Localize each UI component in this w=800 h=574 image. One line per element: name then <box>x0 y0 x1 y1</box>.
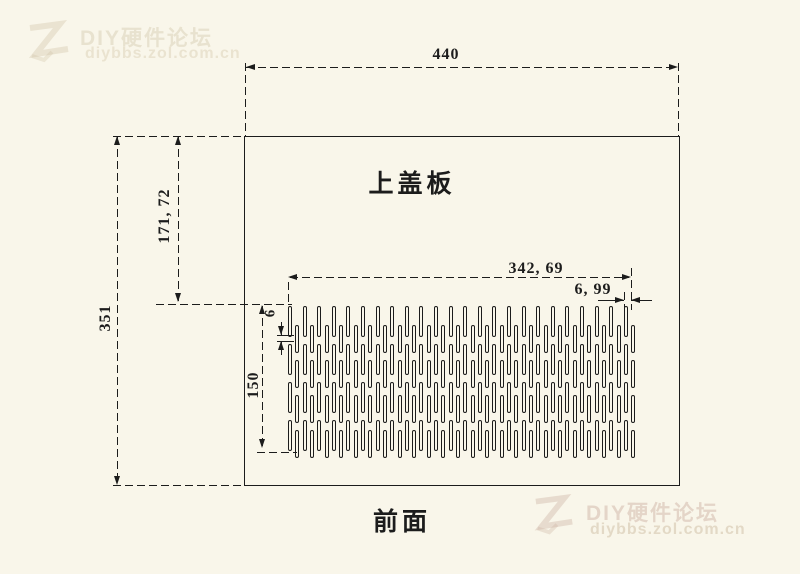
vent-slot <box>544 395 548 423</box>
vent-slot <box>529 325 533 353</box>
cad-drawing-canvas: DIY硬件论坛 diybbs.zol.com.cn DIY硬件论坛 diybbs… <box>0 0 800 574</box>
view-label: 前面 <box>373 502 431 538</box>
vent-slot <box>631 325 635 353</box>
vent-slot <box>463 306 467 337</box>
vent-slot <box>434 420 438 451</box>
vent-slot <box>361 382 365 413</box>
vent-slot <box>478 306 482 337</box>
dim-text-overall-width: 440 <box>433 46 460 64</box>
dim-arrow <box>259 439 265 448</box>
vent-slot <box>456 360 460 388</box>
vent-slot <box>419 382 423 413</box>
vent-slot <box>463 420 467 451</box>
vent-slot <box>368 325 372 353</box>
vent-slot <box>558 430 562 458</box>
vent-slot <box>339 360 343 388</box>
vent-slot <box>303 420 307 451</box>
dim-arrow <box>175 293 181 302</box>
vent-slot <box>624 420 628 451</box>
vent-slot <box>383 430 387 458</box>
dim-line-342 <box>290 277 629 278</box>
vent-slot <box>565 420 569 451</box>
vent-slot <box>390 306 394 337</box>
vent-slot <box>536 420 540 451</box>
dim-line-351 <box>117 137 118 485</box>
vent-slot <box>624 382 628 413</box>
vent-slot <box>310 395 314 423</box>
vent-slot <box>449 382 453 413</box>
vent-slot <box>609 382 613 413</box>
vent-slot <box>346 344 350 375</box>
vent-slot <box>602 395 606 423</box>
vent-slot <box>449 420 453 451</box>
vent-slot <box>354 430 358 458</box>
watermark-logo-icon <box>528 492 582 538</box>
vent-slot <box>463 382 467 413</box>
vent-slot <box>427 430 431 458</box>
vent-slot <box>288 420 292 451</box>
vent-slot <box>288 306 292 337</box>
vent-slot <box>507 344 511 375</box>
vent-slot <box>412 395 416 423</box>
panel-edge-right <box>679 136 680 486</box>
dim-ext-351-bottom <box>113 485 244 486</box>
vent-slot <box>609 420 613 451</box>
vent-slot <box>441 430 445 458</box>
vent-slot <box>398 360 402 388</box>
vent-slot <box>419 344 423 375</box>
vent-slot <box>361 344 365 375</box>
vent-slot <box>376 306 380 337</box>
vent-slot <box>427 395 431 423</box>
vent-slot <box>288 382 292 413</box>
vent-slot <box>514 360 518 388</box>
vent-slot <box>368 395 372 423</box>
vent-slot <box>412 360 416 388</box>
vent-slot <box>617 325 621 353</box>
vent-slot <box>485 325 489 353</box>
vent-slot <box>383 395 387 423</box>
vent-slot <box>303 344 307 375</box>
vent-slot <box>485 395 489 423</box>
vent-slot <box>514 325 518 353</box>
vent-slot <box>325 430 329 458</box>
dim-arrow <box>175 136 181 145</box>
vent-slot <box>551 306 555 337</box>
vent-slot <box>361 306 365 337</box>
dim-line-440 <box>246 67 678 68</box>
vent-slot <box>514 430 518 458</box>
vent-slot <box>617 360 621 388</box>
vent-slot <box>434 344 438 375</box>
vent-slot <box>595 306 599 337</box>
vent-slot <box>405 344 409 375</box>
vent-slot <box>624 306 628 337</box>
dim-ext-440-left <box>245 63 246 136</box>
vent-slot <box>492 306 496 337</box>
vent-slot <box>354 360 358 388</box>
vent-slot <box>310 325 314 353</box>
vent-slot <box>332 306 336 337</box>
vent-slot <box>398 325 402 353</box>
vent-slot <box>551 344 555 375</box>
vent-slot <box>631 430 635 458</box>
vent-slot <box>434 382 438 413</box>
vent-slot <box>332 344 336 375</box>
vent-slot <box>544 430 548 458</box>
vent-slot <box>587 395 591 423</box>
vent-slot <box>544 325 548 353</box>
vent-slot <box>390 382 394 413</box>
vent-slot <box>339 395 343 423</box>
vent-slot <box>478 382 482 413</box>
vent-slot <box>558 325 562 353</box>
dim-arrow <box>631 297 640 303</box>
vent-slot <box>507 382 511 413</box>
vent-slot <box>419 306 423 337</box>
vent-slot <box>368 360 372 388</box>
watermark-logo-icon <box>22 18 78 66</box>
vent-slot <box>602 360 606 388</box>
dim-arrow <box>615 297 624 303</box>
vent-slot <box>471 395 475 423</box>
dim-text-top-offset: 171, 72 <box>156 189 174 244</box>
vent-slot <box>463 344 467 375</box>
vent-slot <box>558 360 562 388</box>
vent-slot <box>544 360 548 388</box>
vent-slot <box>339 430 343 458</box>
vent-slot <box>573 395 577 423</box>
vent-slot <box>573 360 577 388</box>
vent-slot <box>427 360 431 388</box>
dim-ext-171-bottom <box>156 304 292 305</box>
vent-slot <box>332 382 336 413</box>
vent-slot <box>587 325 591 353</box>
vent-slot <box>587 360 591 388</box>
vent-slot <box>441 325 445 353</box>
watermark-url: diybbs.zol.com.cn <box>590 521 746 539</box>
vent-slot <box>492 382 496 413</box>
vent-slot <box>295 360 299 388</box>
vent-slot <box>551 420 555 451</box>
dim-line-171 <box>178 137 179 302</box>
vent-slot <box>580 382 584 413</box>
vent-slot <box>456 325 460 353</box>
dim-text-slot-pitch: 6, 99 <box>575 281 612 299</box>
vent-slot <box>361 420 365 451</box>
vent-slot <box>441 360 445 388</box>
vent-slot <box>383 325 387 353</box>
vent-slot <box>551 382 555 413</box>
vent-slot <box>471 430 475 458</box>
dim-arrow <box>622 274 631 280</box>
vent-slot <box>617 430 621 458</box>
vent-slot <box>317 306 321 337</box>
vent-slot <box>558 395 562 423</box>
vent-slot <box>485 430 489 458</box>
vent-slot <box>514 395 518 423</box>
vent-slot <box>529 395 533 423</box>
vent-slot <box>412 325 416 353</box>
dim-arrow <box>246 64 255 70</box>
vent-slot <box>346 420 350 451</box>
vent-slot <box>522 420 526 451</box>
vent-slot <box>405 420 409 451</box>
vent-slot <box>536 382 540 413</box>
vent-slot <box>405 382 409 413</box>
vent-slot <box>419 420 423 451</box>
vent-slot <box>412 430 416 458</box>
vent-slot <box>346 382 350 413</box>
vent-slot <box>595 344 599 375</box>
vent-slot <box>573 325 577 353</box>
vent-slot <box>565 382 569 413</box>
vent-slot <box>631 395 635 423</box>
vent-slot <box>390 420 394 451</box>
vent-slot <box>609 344 613 375</box>
vent-slot <box>471 360 475 388</box>
vent-slot <box>529 430 533 458</box>
vent-slot <box>398 430 402 458</box>
vent-slot <box>325 360 329 388</box>
dim-text-slot-area-height: 150 <box>245 372 263 399</box>
vent-slot <box>500 395 504 423</box>
vent-slot <box>390 344 394 375</box>
vent-slot <box>310 430 314 458</box>
vent-slot <box>441 395 445 423</box>
vent-slot <box>398 395 402 423</box>
vent-slot <box>617 395 621 423</box>
vent-slot <box>609 306 613 337</box>
dim-text-overall-height: 351 <box>97 305 115 332</box>
vent-slot <box>507 420 511 451</box>
vent-slot <box>522 382 526 413</box>
vent-slot <box>536 306 540 337</box>
vent-slot <box>624 344 628 375</box>
vent-slot <box>580 344 584 375</box>
vent-slot <box>485 360 489 388</box>
vent-slot <box>492 344 496 375</box>
vent-slot <box>317 420 321 451</box>
vent-slot <box>405 306 409 337</box>
vent-slot <box>376 382 380 413</box>
vent-slot <box>602 325 606 353</box>
dim-arrow <box>114 476 120 485</box>
vent-slot <box>303 382 307 413</box>
dim-arrow <box>669 64 678 70</box>
dim-arrow <box>288 274 297 280</box>
vent-slot <box>478 344 482 375</box>
vent-slot <box>295 395 299 423</box>
vent-slot <box>310 360 314 388</box>
vent-slot <box>565 306 569 337</box>
vent-slot <box>478 420 482 451</box>
vent-slot <box>456 430 460 458</box>
panel-edge-bottom <box>244 485 680 486</box>
vent-slot <box>376 344 380 375</box>
dim-ext-342-right <box>631 268 632 310</box>
panel-edge-left <box>244 136 245 486</box>
vent-slot <box>376 420 380 451</box>
vent-slot <box>565 344 569 375</box>
vent-slot <box>500 325 504 353</box>
vent-slot <box>434 306 438 337</box>
watermark-url: diybbs.zol.com.cn <box>85 45 241 63</box>
vent-slot <box>587 430 591 458</box>
vent-slot <box>317 344 321 375</box>
vent-slot <box>595 382 599 413</box>
vent-slot <box>325 325 329 353</box>
vent-slot <box>383 360 387 388</box>
vent-slot <box>595 420 599 451</box>
vent-slot <box>492 420 496 451</box>
vent-slot <box>456 395 460 423</box>
vent-slot <box>580 306 584 337</box>
vent-slot <box>529 360 533 388</box>
vent-slot <box>602 430 606 458</box>
dim-arrow <box>278 341 284 350</box>
part-label: 上盖板 <box>368 164 455 200</box>
dim-arrow <box>114 136 120 145</box>
dim-ext-150-bottom <box>257 452 297 453</box>
vent-slot <box>354 325 358 353</box>
dim-ext-342-left <box>288 282 289 306</box>
vent-slot <box>522 344 526 375</box>
vent-slot <box>354 395 358 423</box>
vent-slot <box>500 430 504 458</box>
vent-slot <box>339 325 343 353</box>
vent-slot <box>427 325 431 353</box>
vent-slot <box>507 306 511 337</box>
vent-slot <box>449 306 453 337</box>
panel-edge-top <box>244 136 680 137</box>
dim-text-slot-gap: 6 <box>263 309 280 318</box>
vent-slot <box>536 344 540 375</box>
vent-slot <box>368 430 372 458</box>
vent-slot <box>631 360 635 388</box>
vent-slot <box>325 395 329 423</box>
vent-slot <box>449 344 453 375</box>
vent-slot <box>580 420 584 451</box>
vent-slot <box>332 420 336 451</box>
dim-arrow <box>278 326 284 335</box>
vent-slot <box>288 344 292 375</box>
vent-slot <box>303 306 307 337</box>
dim-text-slot-area-width: 342, 69 <box>509 260 564 278</box>
dim-ext-440-right <box>678 63 679 136</box>
vent-slot <box>317 382 321 413</box>
vent-slot <box>295 430 299 458</box>
vent-slot <box>295 325 299 353</box>
vent-slot <box>573 430 577 458</box>
vent-slot <box>471 325 475 353</box>
vent-slot <box>522 306 526 337</box>
vent-slot <box>500 360 504 388</box>
vent-slot <box>346 306 350 337</box>
